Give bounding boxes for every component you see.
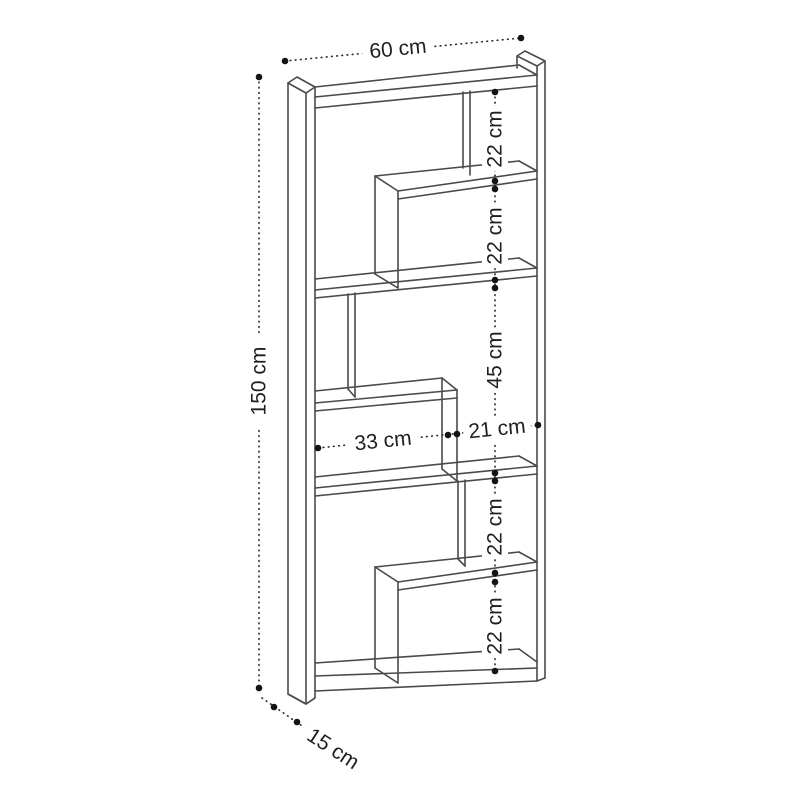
- left-side-panel: [288, 77, 315, 704]
- divider-middle-left: [348, 293, 355, 397]
- height-dimension-label: 150 cm: [248, 347, 271, 416]
- shelf-upper-right: [375, 161, 537, 288]
- top-shelf: [315, 65, 537, 108]
- section2-dimension-label: 22 cm: [484, 207, 507, 264]
- section3-dimension-label: 45 cm: [484, 331, 507, 388]
- section4-dimension-label: 22 cm: [484, 498, 507, 555]
- diagram-canvas: 60 cm 150 cm 15 cm 22 cm 22 cm 45 cm: [0, 0, 800, 800]
- bookcase-dimension-diagram: 60 cm 150 cm 15 cm 22 cm 22 cm 45 cm: [0, 0, 800, 800]
- shelf-fourth: [315, 456, 537, 496]
- section1-dimension-label: 22 cm: [484, 110, 507, 167]
- right-side-panel: [517, 51, 545, 681]
- section5-dimension-label: 22 cm: [484, 597, 507, 654]
- divider-top-right: [463, 91, 470, 175]
- shelf-lower-right: [375, 552, 537, 683]
- divider-lower-right: [458, 480, 465, 566]
